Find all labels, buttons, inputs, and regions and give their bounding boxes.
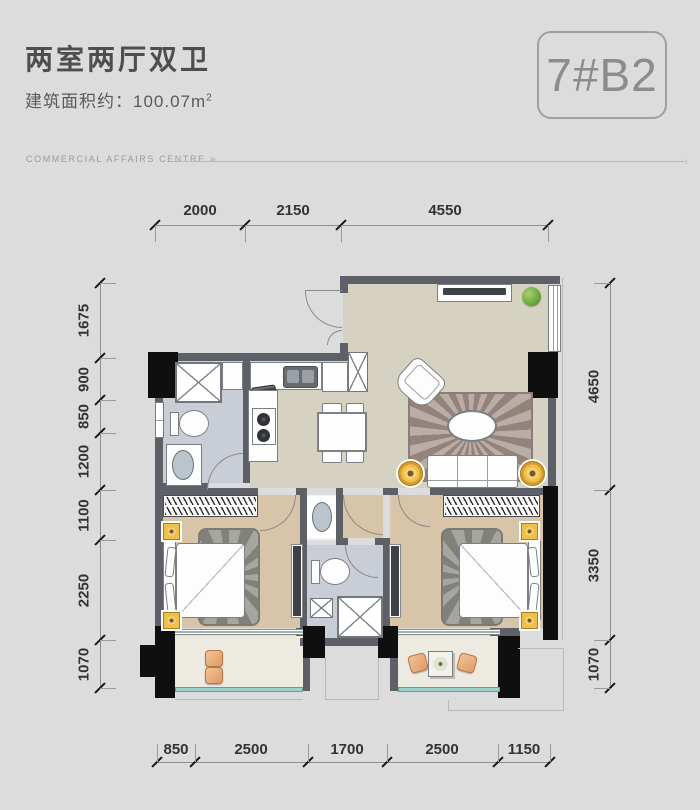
chevrons-icon: » <box>210 154 216 165</box>
dim-line <box>610 283 611 688</box>
toilet-tank <box>311 560 320 584</box>
unit-badge: 7#B2 <box>537 31 667 119</box>
dim-ext <box>308 744 309 762</box>
toilet-bowl <box>320 558 350 585</box>
shower <box>175 362 222 403</box>
side-table <box>398 461 423 486</box>
burner <box>257 429 270 442</box>
dim-label: 2500 <box>221 741 281 758</box>
dim-label: 1675 <box>76 291 93 351</box>
wall <box>548 398 556 488</box>
dining-chair <box>346 451 364 463</box>
facade-line <box>448 710 564 711</box>
dim-label: 1200 <box>76 432 93 492</box>
wall <box>383 488 398 495</box>
bed <box>176 543 245 618</box>
column <box>148 352 178 398</box>
dim-ext <box>100 358 116 359</box>
tv-console <box>292 545 302 617</box>
wardrobe <box>163 495 258 517</box>
sink-basin <box>302 370 314 383</box>
cabinet <box>222 362 243 390</box>
dim-label: 1070 <box>586 635 603 695</box>
sink-basin <box>287 370 299 383</box>
dining-chair <box>322 451 342 463</box>
dim-label: 2500 <box>412 741 472 758</box>
dim-line <box>155 225 548 226</box>
dim-ext <box>100 688 116 689</box>
facade-line <box>325 658 326 700</box>
washbasin <box>312 502 332 532</box>
dim-ext <box>155 225 156 242</box>
nightstand <box>163 612 180 629</box>
page-title: 两室两厅双卫 <box>25 38 211 78</box>
facade-line <box>562 278 563 640</box>
entry-door-arc <box>305 291 342 328</box>
tagline-text: COMMERCIAL AFFAIRS CENTRE <box>26 154 206 164</box>
wall <box>340 276 560 284</box>
dim-label: 4650 <box>586 357 603 417</box>
washbasin <box>172 450 194 480</box>
sofa <box>427 455 518 488</box>
toilet-bowl <box>179 410 209 437</box>
wall <box>336 488 343 545</box>
duct-shaft <box>348 352 368 392</box>
shower <box>337 596 383 638</box>
plant-icon <box>522 287 541 306</box>
balcony-1-floor <box>175 636 303 691</box>
facade-line <box>563 648 564 711</box>
dim-label: 4550 <box>415 202 475 219</box>
arrow-right-icon: › <box>684 154 688 168</box>
nightstand <box>163 523 180 540</box>
dim-label: 2000 <box>170 202 230 219</box>
dim-label: 1100 <box>76 486 93 546</box>
entry-door-arc-small <box>327 330 342 345</box>
dim-label: 1700 <box>317 741 377 758</box>
balcony-stool <box>205 667 223 684</box>
dim-label: 1150 <box>494 741 554 758</box>
dim-ext <box>100 283 116 284</box>
wall <box>148 353 348 361</box>
dim-label: 2150 <box>263 202 323 219</box>
floorplan-page: { "header": { "title": "两室两厅双卫", "area_l… <box>0 0 700 810</box>
tv-console <box>390 545 400 617</box>
toilet-tank <box>170 412 179 436</box>
bay-window <box>548 285 561 352</box>
facade-line <box>325 699 379 700</box>
area-superscript: 2 <box>206 92 213 103</box>
kitchen-sink <box>283 366 318 388</box>
dim-ext <box>245 225 246 242</box>
balcony-sliding-door <box>175 629 303 635</box>
wall <box>336 538 348 545</box>
facade-line <box>448 700 449 711</box>
coffee-table <box>447 410 497 442</box>
wall <box>340 343 348 361</box>
burner <box>257 413 270 426</box>
tv <box>443 288 506 295</box>
facade-line <box>378 658 379 700</box>
facade-line <box>175 699 303 700</box>
column <box>498 636 520 698</box>
wardrobe <box>443 495 540 517</box>
side-table <box>520 461 545 486</box>
facade-line <box>518 648 564 649</box>
dim-label: 2250 <box>76 561 93 621</box>
nightstand <box>521 612 538 629</box>
fridge <box>322 362 348 392</box>
dining-table <box>317 412 367 452</box>
bathroom-window <box>155 402 164 438</box>
balcony-glass-rail <box>175 687 303 692</box>
column <box>543 486 558 640</box>
balcony-sliding-door <box>398 629 500 635</box>
balcony-stool <box>205 650 223 667</box>
duct-shaft <box>310 598 333 618</box>
dim-label: 3350 <box>586 536 603 596</box>
bed <box>459 543 528 618</box>
dim-ext <box>100 433 116 434</box>
tagline-rule <box>172 161 684 162</box>
nightstand <box>521 523 538 540</box>
tagline: COMMERCIAL AFFAIRS CENTRE » <box>26 154 215 165</box>
area-text: 建筑面积约：100.07m <box>25 92 206 111</box>
balcony-glass-rail <box>398 687 500 692</box>
wall <box>383 538 390 628</box>
wall <box>430 488 543 495</box>
dim-ext <box>387 744 388 762</box>
dim-ext <box>100 490 116 491</box>
dim-label: 1070 <box>76 635 93 695</box>
area-label: 建筑面积约：100.07m2 <box>25 87 213 112</box>
dim-label: 850 <box>146 741 206 758</box>
dim-ext <box>594 490 610 491</box>
column <box>303 626 325 658</box>
column <box>140 645 157 677</box>
dim-ext <box>341 225 342 242</box>
balcony-table <box>428 651 453 677</box>
dim-ext <box>100 400 116 401</box>
dim-ext <box>100 540 116 541</box>
column <box>155 626 175 698</box>
dim-ext <box>548 225 549 242</box>
dim-ext <box>594 283 610 284</box>
dim-ext <box>100 640 116 641</box>
dim-line <box>100 283 101 688</box>
dim-line <box>157 762 550 763</box>
cooktop <box>252 408 276 445</box>
